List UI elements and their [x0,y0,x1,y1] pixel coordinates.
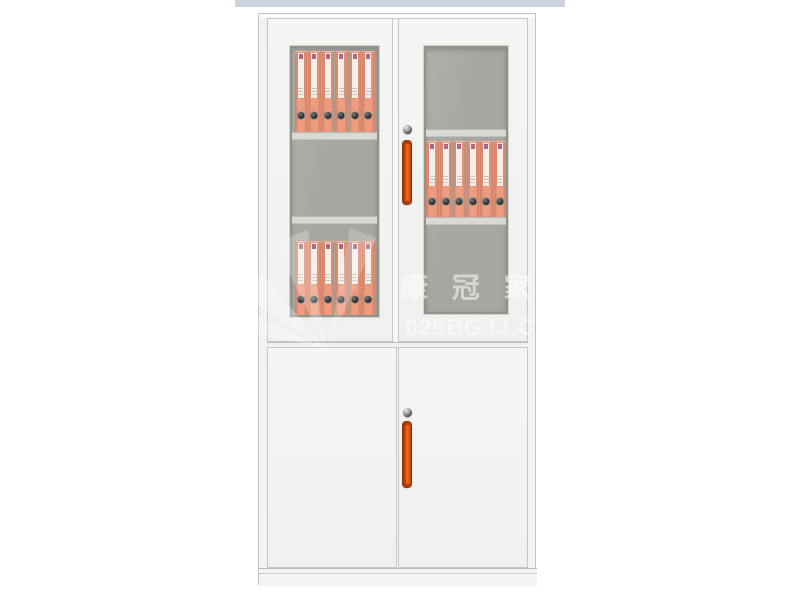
binder-label-text [298,88,303,95]
binder [295,241,308,315]
binder [308,51,321,132]
binder [349,241,362,315]
binder-label-text [497,176,502,183]
shelf [426,129,506,137]
filing-cabinet [258,13,536,585]
binder-row-top [292,51,377,132]
binder-label [470,143,476,186]
binder-label [298,243,304,284]
binder-label [497,143,503,186]
binder-label-mark [299,244,303,249]
binder-label-mark [339,244,343,249]
binder-grip-hole [351,112,358,119]
binder-grip-hole [297,112,304,119]
binder-grip-hole [324,296,331,303]
binder-label [352,243,358,284]
binder-label-mark [366,244,370,249]
binder-label-text [443,176,448,183]
binder-label [298,53,304,98]
binder-label-text [366,274,371,281]
binder-grip-hole [442,198,449,205]
binder-row-bottom [292,241,377,315]
binder [295,51,308,132]
binder-row-middle [426,141,506,217]
binder [322,51,335,132]
base-line [259,573,537,574]
lower-left-door [267,347,397,568]
binder-label-mark [444,144,448,149]
binder-label-mark [430,144,434,149]
binder-label-text [366,88,371,95]
binder-grip-hole [311,112,318,119]
binder-label [429,143,435,186]
binder-label-mark [326,54,330,59]
binder [362,241,375,315]
binder-label-text [352,274,357,281]
binder [467,141,480,217]
top-strip [235,0,565,7]
binder-label-text [325,88,330,95]
lower-lock-icon [403,408,412,417]
binder-label-text [457,176,462,183]
binder-label [311,53,317,98]
binder [308,241,321,315]
binder-label-text [312,88,317,95]
binder-grip-hole [338,112,345,119]
binder [335,241,348,315]
upper-lock-icon [403,125,412,134]
binder-label [325,243,331,284]
lower-door-handle [403,422,411,487]
binder-label-text [352,88,357,95]
binder-grip-hole [365,112,372,119]
binder-grip-hole [297,296,304,303]
binder-label-text [339,88,344,95]
binder-grip-hole [365,296,372,303]
binder-grip-hole [496,198,503,205]
binder-label [325,53,331,98]
binder [440,141,453,217]
shelf [426,217,506,225]
binder-label-text [325,274,330,281]
binder-grip-hole [469,198,476,205]
binder-label [483,143,489,186]
upper-right-glass-door [398,18,528,342]
binder-label-mark [326,244,330,249]
binder-label [338,243,344,284]
shelf [292,216,377,224]
binder-label-text [470,176,475,183]
binder-label-mark [299,54,303,59]
binder-label-mark [312,244,316,249]
binder-label-mark [498,144,502,149]
binder-grip-hole [324,112,331,119]
binder-label-text [312,274,317,281]
binder-label-text [484,176,489,183]
binder [453,141,466,217]
binder-label-mark [366,54,370,59]
binder-label [365,53,371,98]
binder-grip-hole [338,296,345,303]
base-plinth [259,568,537,586]
binder-label-text [298,274,303,281]
glass-window-right [424,46,508,314]
binder-label [338,53,344,98]
binder-label-mark [353,244,357,249]
binder-label-mark [339,54,343,59]
binder-label-mark [471,144,475,149]
binder [362,51,375,132]
binder [349,51,362,132]
binder-grip-hole [429,198,436,205]
glass-window-left [290,46,379,317]
binder-grip-hole [456,198,463,205]
binder-label-mark [484,144,488,149]
binder-label [456,143,462,186]
binder-label-mark [312,54,316,59]
binder-label [352,53,358,98]
binder-label [443,143,449,186]
binder-grip-hole [483,198,490,205]
binder-label [365,243,371,284]
binder [335,51,348,132]
binder [480,141,493,217]
upper-door-handle [403,141,411,204]
upper-left-glass-door [267,18,393,342]
binder-grip-hole [351,296,358,303]
lower-right-door [398,347,528,568]
binder-grip-hole [311,296,318,303]
binder [494,141,507,217]
binder-label-mark [353,54,357,59]
shelf [292,132,377,140]
binder [426,141,439,217]
binder-label-text [339,274,344,281]
binder-label-mark [457,144,461,149]
binder-label-text [430,176,435,183]
binder [322,241,335,315]
binder-label [311,243,317,284]
